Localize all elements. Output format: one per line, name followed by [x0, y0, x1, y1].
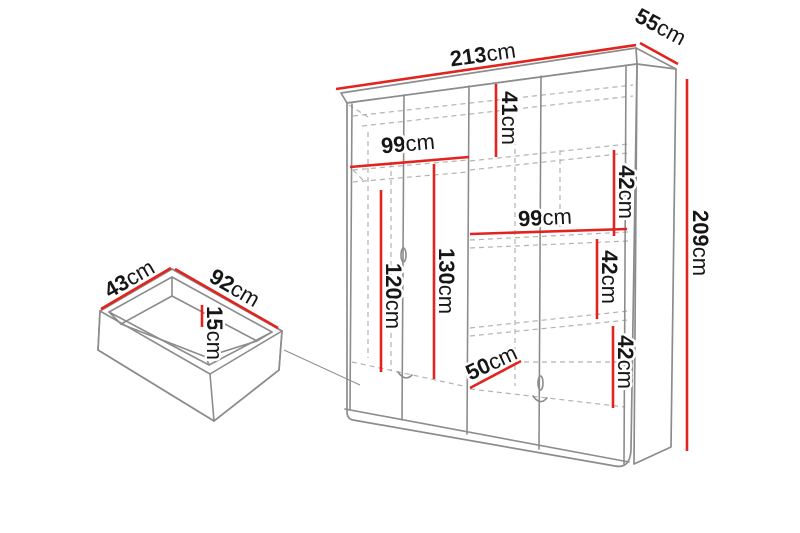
dimension-label: 15cm — [202, 306, 227, 360]
dimension-label: 42cm — [614, 165, 639, 219]
dimension-label: 42cm — [597, 250, 622, 304]
dimension-label: 209cm — [688, 210, 713, 276]
dimension-label: 99cm — [380, 129, 436, 159]
dimension-drawer-height-15: 15cm — [202, 305, 227, 360]
dimension-depth-55: 55cm — [631, 3, 690, 64]
dimension-label: 130cm — [434, 248, 459, 314]
dimension-label: 120cm — [381, 263, 406, 329]
dimension-label: 41cm — [497, 91, 522, 145]
dimension-label: 42cm — [613, 335, 638, 389]
wardrobe-side-face — [634, 64, 676, 464]
dimension-label: 99cm — [517, 203, 572, 231]
dimension-height-209: 209cm — [687, 79, 713, 451]
dimension-label: 213cm — [448, 37, 517, 71]
furniture-dimension-diagram: 213cm 55cm 209cm 41cm 99cm — [0, 0, 800, 533]
